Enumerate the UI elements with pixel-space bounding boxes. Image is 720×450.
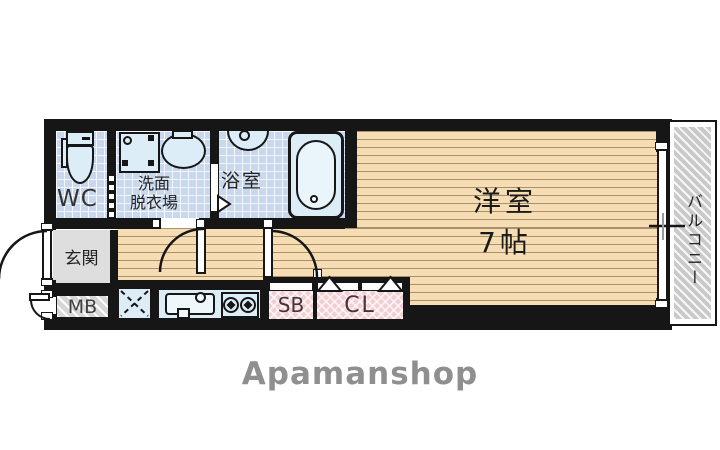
entrance-label: 玄関 [65,244,99,269]
washing-machine-corner [122,160,128,166]
bathroom-door [210,163,219,212]
wc-label: WC [57,186,98,212]
washroom-label: 洗面 脱衣場 [110,174,198,216]
shoe-box-label: SB [269,291,313,319]
washbasin-faucet-icon [172,130,193,139]
bathtub-drain-icon [310,195,318,203]
washing-machine-corner [148,160,154,166]
jamb-washroom-left [152,219,160,228]
refrigerator-space [117,287,152,320]
balcony-label: バルコニー [675,160,711,320]
jamb-mb-bottom [41,312,53,320]
bathroom-label: 浴室 [221,166,263,193]
closet-label: CL [317,291,403,319]
entrance-door [42,229,52,280]
wall-left-upper [44,119,56,230]
wall-wet-bottom-left [44,218,161,229]
mb-door [29,293,50,301]
jamb-window-bottom [655,300,668,308]
shoe-box-door [269,282,313,291]
kitchen-cabinet-icon [177,308,190,319]
kitchen-faucet-icon [195,292,206,303]
wall-bath-right [345,119,357,228]
stove-icon [221,292,259,318]
wall-bottom-right [410,305,672,319]
washroom-door [196,228,206,274]
wall-top [44,119,672,131]
jamb-washroom-right [196,219,205,228]
wall-bath-divider-top [210,131,219,163]
balcony-window [657,149,668,301]
washing-machine-corner [148,135,154,141]
bath-sink-faucet-icon [239,130,250,141]
apamanshop-logo: Apamanshop [0,356,720,392]
wall-entrance-right [110,230,118,283]
floorplan-canvas: 玄関 MB [0,0,720,450]
kitchen-sink-icon [165,293,215,315]
western-room-label: 洋室 7帖 [400,181,610,263]
meter-box-label: MB [57,296,108,317]
entrance-door-arc [0,231,47,279]
entrance-area: 玄関 [53,230,110,283]
washing-machine-drain-icon [123,136,132,145]
jamb-room-door-end [313,269,322,278]
toilet-handle-icon [82,137,90,140]
western-room-door [263,227,273,278]
